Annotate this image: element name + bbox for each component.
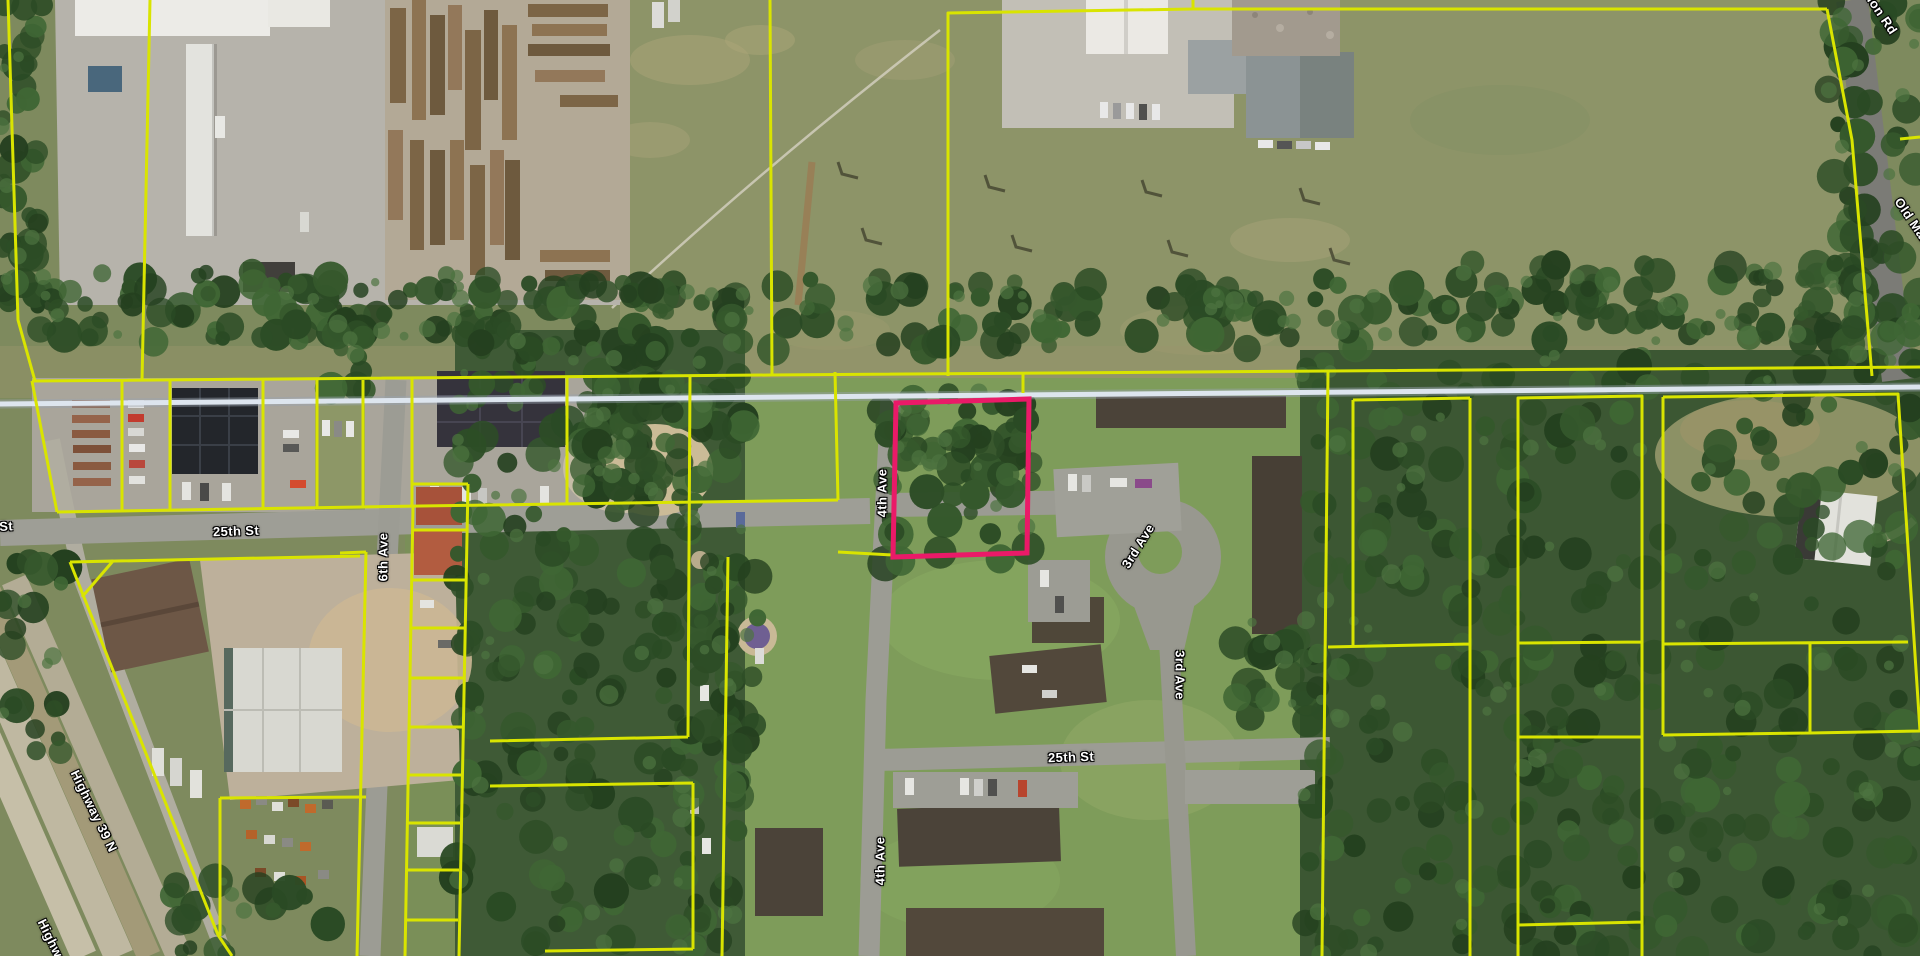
mill-long-building [186,44,214,236]
apartment-building [1096,396,1286,428]
road-25th-st-south [878,748,1330,760]
apartment-building [1252,456,1302,634]
gray-warehouse [1246,52,1300,138]
map-canvas[interactable]: 25th St25th St25th St6th Ave4th Ave4th A… [0,0,1920,956]
satellite-imagery [0,0,1920,956]
mill-building [75,0,270,36]
